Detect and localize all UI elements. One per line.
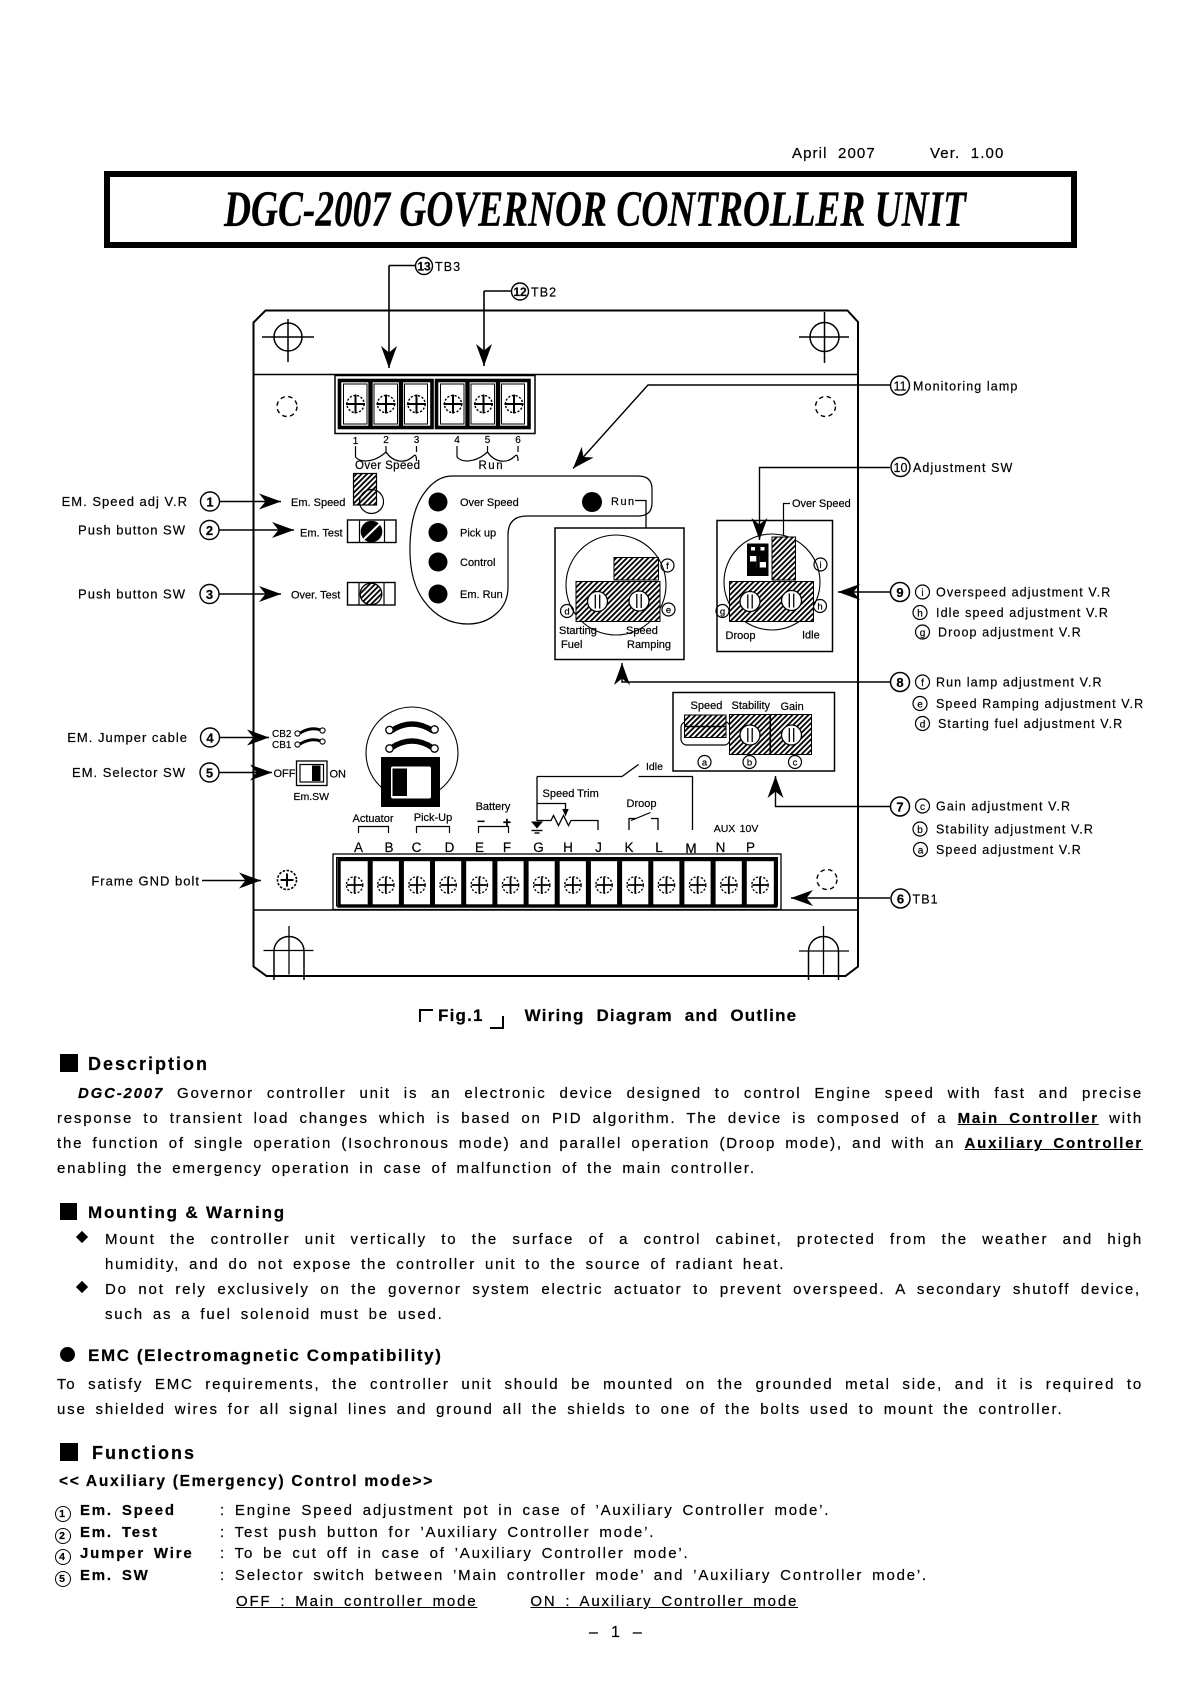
svg-text:Em. Speed: Em. Speed (291, 497, 345, 509)
svg-text:Starting fuel adjustment V.R: Starting fuel adjustment V.R (938, 717, 1123, 731)
svg-text:Em. Run: Em. Run (460, 589, 503, 601)
svg-text:5: 5 (485, 435, 491, 446)
svg-text:e: e (666, 605, 671, 616)
svg-text:Gain adjustment V.R: Gain adjustment V.R (936, 800, 1071, 814)
svg-text:10: 10 (894, 461, 908, 475)
svg-text:b: b (747, 758, 752, 769)
svg-text:Speed Ramping adjustment V.R: Speed Ramping adjustment V.R (936, 697, 1144, 711)
svg-text:10V: 10V (740, 823, 759, 835)
svg-text:5: 5 (206, 766, 213, 781)
svg-text:J: J (595, 840, 602, 855)
svg-text:7: 7 (896, 800, 903, 815)
svg-text:d: d (564, 607, 569, 618)
svg-text:F: F (503, 840, 511, 855)
svg-text:h: h (917, 608, 923, 619)
svg-text:B: B (384, 840, 393, 855)
svg-text:L: L (655, 840, 663, 855)
svg-text:Run: Run (479, 460, 505, 472)
svg-text:Pick-Up: Pick-Up (414, 812, 453, 824)
svg-text:Droop: Droop (627, 798, 657, 810)
svg-text:12: 12 (513, 285, 527, 299)
svg-text:Fuel: Fuel (561, 639, 582, 651)
svg-text:b: b (917, 825, 923, 836)
svg-text:8: 8 (896, 675, 903, 690)
svg-text:3: 3 (206, 587, 213, 602)
svg-text:13: 13 (417, 260, 431, 274)
svg-text:Em. Test: Em. Test (300, 528, 343, 540)
svg-text:g: g (720, 607, 725, 618)
svg-text:Run lamp adjustment V.R: Run lamp adjustment V.R (936, 676, 1103, 690)
svg-text:H: H (563, 840, 573, 855)
svg-text:–: – (477, 812, 485, 828)
svg-text:N: N (716, 840, 726, 855)
svg-text:ON: ON (330, 769, 347, 781)
svg-text:c: c (920, 802, 925, 813)
svg-text:Stability adjustment V.R: Stability adjustment V.R (936, 823, 1094, 837)
svg-text:6: 6 (515, 435, 521, 446)
svg-text:Em.SW: Em.SW (294, 791, 330, 803)
svg-text:EM. Selector SW: EM. Selector SW (72, 765, 186, 780)
svg-text:e: e (917, 699, 923, 710)
svg-text:i: i (819, 560, 821, 571)
svg-text:d: d (920, 719, 926, 730)
svg-text:Speed adjustment V.R: Speed adjustment V.R (936, 843, 1082, 857)
svg-text:Push button SW: Push button SW (78, 523, 186, 538)
svg-text:CB2: CB2 (272, 729, 292, 740)
svg-text:Idle speed adjustment V.R: Idle speed adjustment V.R (936, 606, 1109, 620)
svg-text:Over Speed: Over Speed (460, 497, 519, 509)
svg-text:EM. Speed adj V.R: EM. Speed adj V.R (62, 494, 188, 509)
svg-text:g: g (920, 628, 926, 639)
svg-text:Over Speed: Over Speed (792, 498, 851, 510)
svg-text:1: 1 (353, 436, 359, 447)
svg-text:AUX: AUX (714, 823, 736, 835)
svg-text:Gain: Gain (781, 701, 804, 713)
svg-text:Over. Test: Over. Test (291, 590, 340, 602)
svg-text:i: i (921, 588, 923, 599)
svg-text:Droop: Droop (726, 630, 756, 642)
svg-text:a: a (918, 845, 924, 856)
svg-text:f: f (921, 678, 924, 689)
svg-text:Run: Run (611, 496, 636, 508)
svg-text:Actuator: Actuator (353, 813, 394, 825)
svg-text:EM. Jumper cable: EM. Jumper cable (67, 730, 188, 745)
svg-text:Overspeed adjustment V.R: Overspeed adjustment V.R (936, 586, 1111, 600)
svg-text:CB1: CB1 (272, 740, 292, 751)
svg-text:1: 1 (206, 495, 213, 510)
svg-text:D: D (445, 840, 455, 855)
svg-text:TB1: TB1 (913, 893, 939, 907)
svg-text:c: c (793, 758, 798, 769)
svg-text:Speed Trim: Speed Trim (543, 788, 599, 800)
svg-text:6: 6 (897, 892, 904, 907)
svg-text:Control: Control (460, 557, 495, 569)
svg-text:C: C (412, 840, 422, 855)
svg-text:Idle: Idle (646, 761, 663, 773)
svg-text:Speed: Speed (626, 625, 658, 637)
svg-text:Over Speed: Over Speed (355, 460, 420, 472)
svg-text:OFF: OFF (274, 768, 296, 780)
svg-text:2: 2 (206, 523, 213, 538)
svg-text:Speed: Speed (691, 700, 723, 712)
svg-text:9: 9 (896, 585, 903, 600)
svg-text:Frame GND bolt: Frame GND bolt (91, 874, 200, 889)
svg-text:Pick up: Pick up (460, 528, 496, 540)
svg-text:Monitoring lamp: Monitoring lamp (913, 380, 1018, 394)
svg-text:Droop adjustment V.R: Droop adjustment V.R (938, 626, 1082, 640)
svg-text:Adjustment SW: Adjustment SW (913, 461, 1013, 475)
svg-text:a: a (702, 758, 708, 769)
svg-text:E: E (475, 840, 484, 855)
svg-text:Idle: Idle (802, 630, 820, 642)
svg-text:f: f (666, 561, 669, 572)
svg-text:TB2: TB2 (531, 286, 557, 300)
svg-text:4: 4 (454, 435, 460, 446)
svg-text:3: 3 (414, 435, 420, 446)
svg-text:Push button SW: Push button SW (78, 587, 186, 602)
svg-text:h: h (817, 602, 822, 613)
svg-text:G: G (533, 840, 544, 855)
svg-text:TB3: TB3 (435, 260, 461, 274)
svg-text:4: 4 (206, 731, 214, 746)
svg-text:Ramping: Ramping (627, 639, 671, 651)
svg-text:+: + (503, 814, 511, 830)
svg-text:Starting: Starting (559, 625, 597, 637)
svg-text:Stability: Stability (732, 700, 771, 712)
svg-text:11: 11 (894, 380, 907, 394)
svg-text:2: 2 (383, 435, 389, 446)
svg-text:K: K (624, 840, 633, 855)
svg-text:P: P (746, 840, 755, 855)
svg-text:A: A (354, 840, 363, 855)
